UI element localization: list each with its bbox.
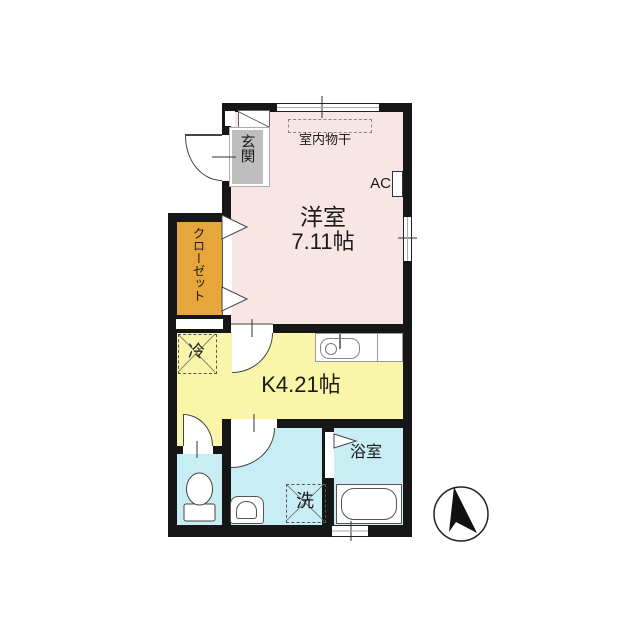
closet-door-triangle-icon xyxy=(222,215,247,239)
closet-door-triangle-icon xyxy=(222,287,247,311)
room-kitchen-name: K4.21帖 xyxy=(245,374,357,396)
indoor-drying-label: 室内物干 xyxy=(285,133,365,146)
room-bathroom-name: 浴室 xyxy=(340,445,392,461)
ac-label: AC xyxy=(358,176,391,191)
washing-machine-label: 洗 xyxy=(286,492,324,510)
refrigerator-label: 冷 xyxy=(178,343,215,360)
toilet-bowl-icon xyxy=(187,473,213,505)
toilet-tank-icon xyxy=(184,504,215,521)
faucet-knob-icon xyxy=(326,344,337,355)
room-living-size: 7.11帖 xyxy=(270,231,376,253)
symbol-overlay xyxy=(0,0,640,640)
room-closet-name: クローゼット xyxy=(191,227,204,313)
floorplan-canvas: 洋室 7.11帖 K4.21帖 浴室 クローゼット 玄関 室内物干 AC 冷 洗 xyxy=(0,0,640,640)
shoe-cabinet-diagonal xyxy=(239,112,269,127)
room-entrance-name: 玄関 xyxy=(239,134,254,182)
room-living-name: 洋室 xyxy=(270,206,376,229)
